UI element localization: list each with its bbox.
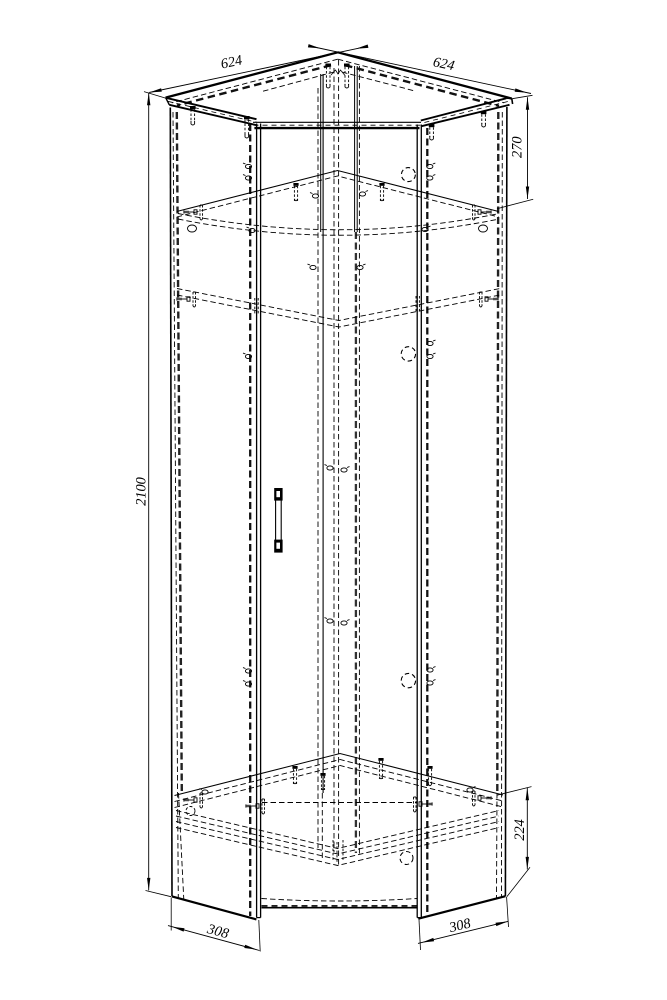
svg-text:270: 270 xyxy=(510,136,526,157)
svg-text:224: 224 xyxy=(512,819,528,840)
svg-text:2100: 2100 xyxy=(133,477,149,506)
